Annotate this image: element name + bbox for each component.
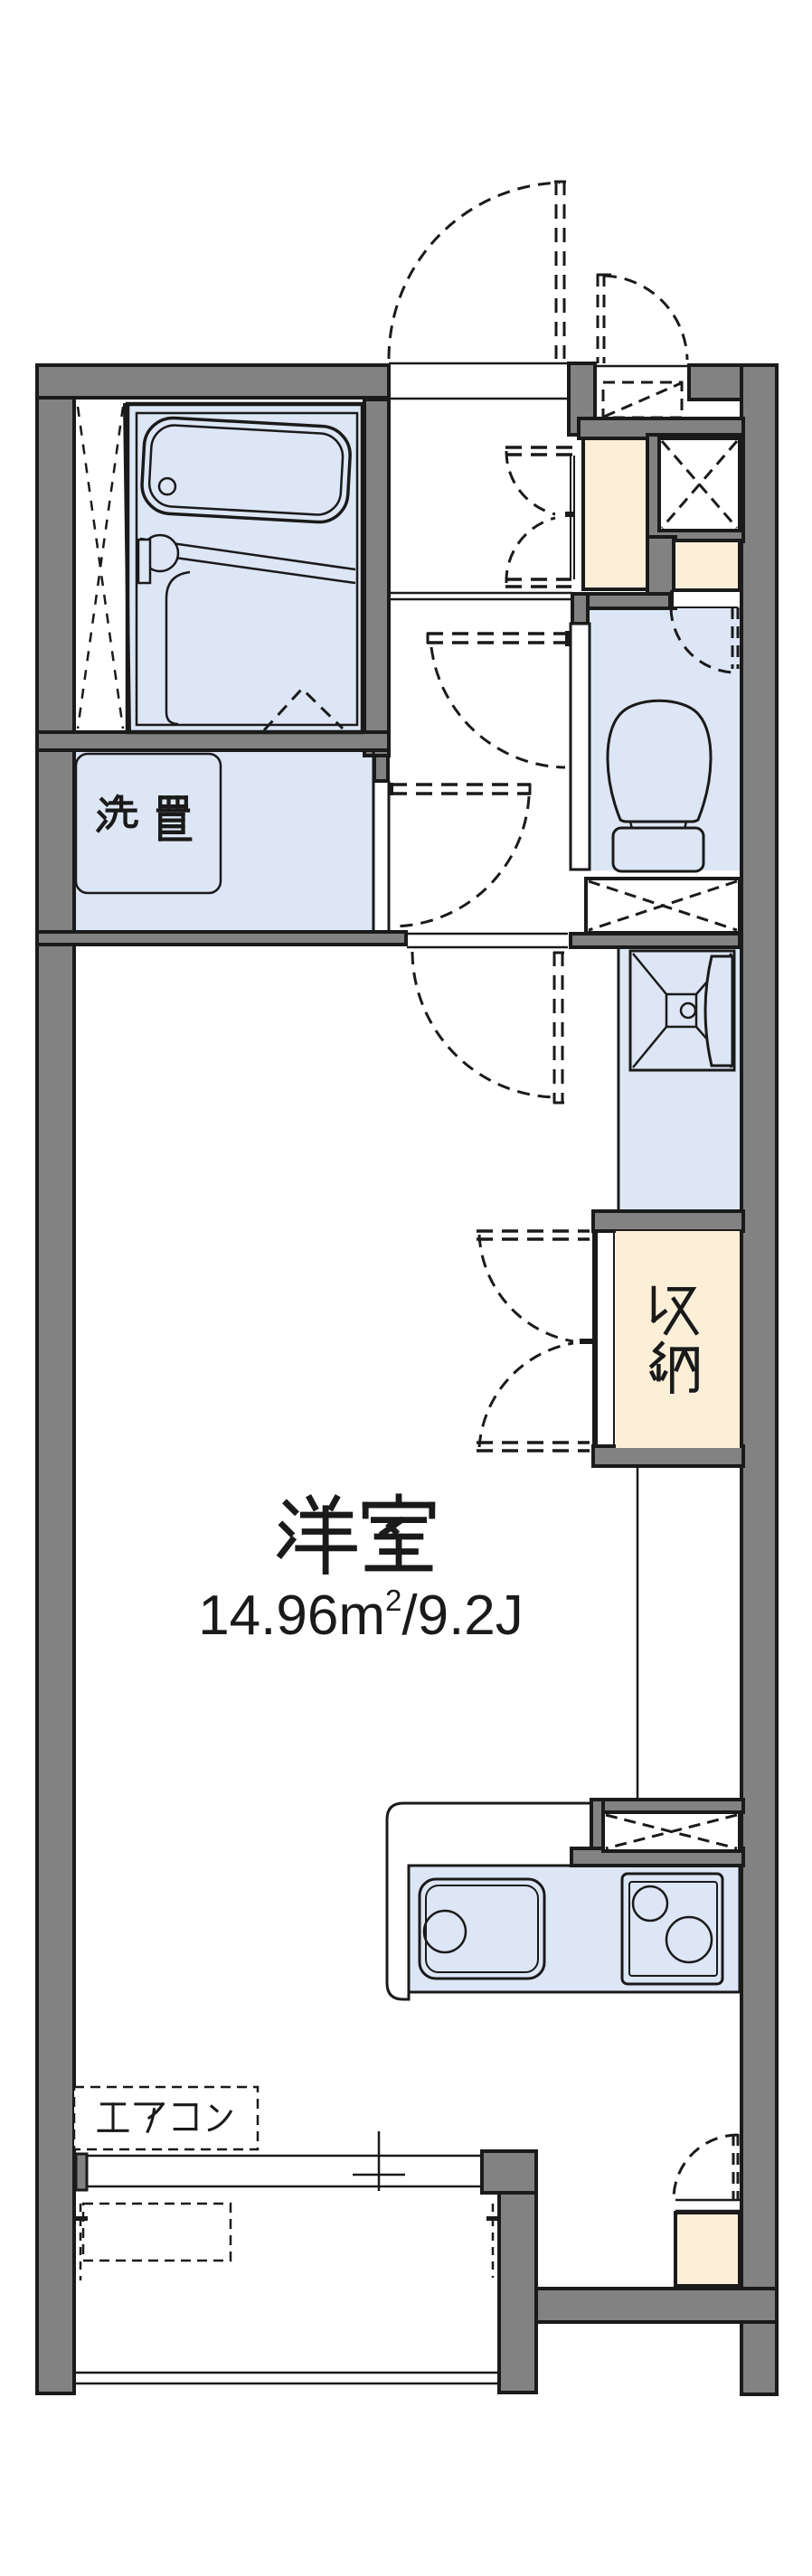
svg-text:14.96m2/9.2J: 14.96m2/9.2J <box>198 1584 524 1647</box>
